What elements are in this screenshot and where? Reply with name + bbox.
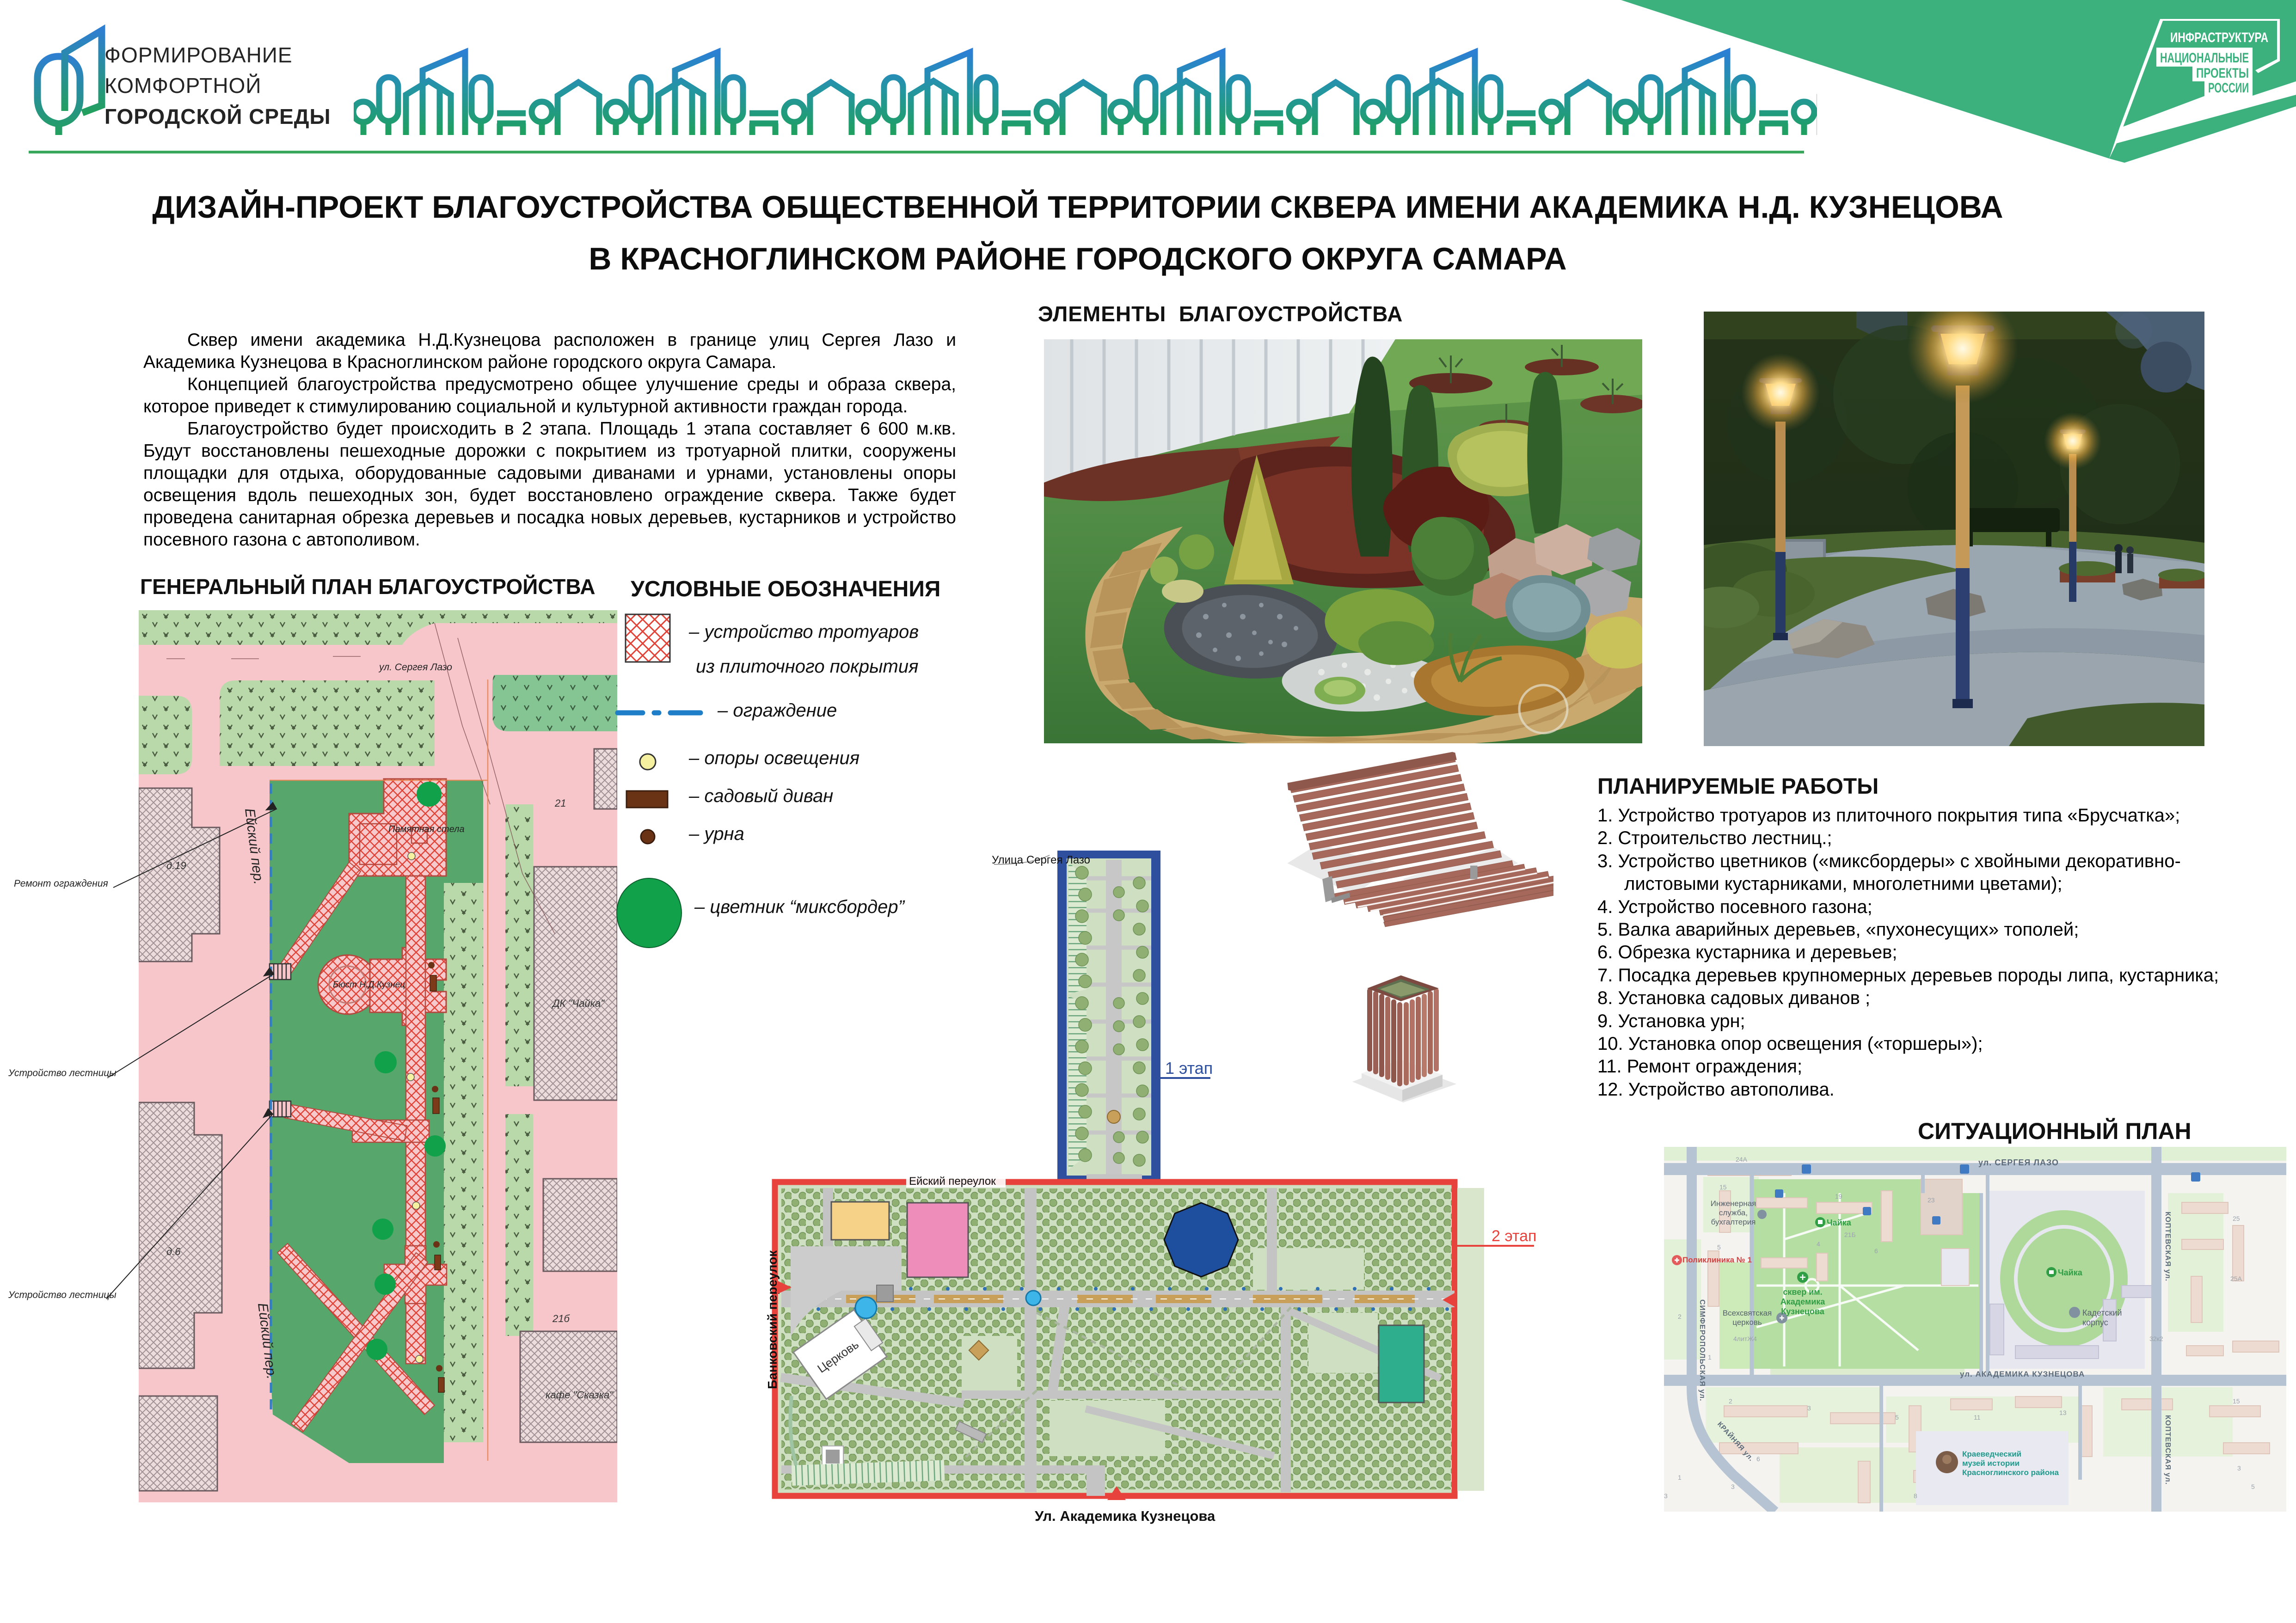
svg-text:НАЦИОНАЛЬНЫЕ: НАЦИОНАЛЬНЫЕ xyxy=(2160,50,2249,66)
svg-text:Поликлиника № 1: Поликлиника № 1 xyxy=(1682,1256,1752,1264)
svg-text:25А: 25А xyxy=(2230,1275,2242,1282)
svg-text:Памятная стела: Памятная стела xyxy=(388,824,465,834)
svg-text:32к2: 32к2 xyxy=(2149,1335,2163,1342)
svg-text:5: 5 xyxy=(1895,1414,1899,1421)
svg-text:2 этап: 2 этап xyxy=(1492,1227,1536,1245)
svg-text:ул. Сергея Лазо: ул. Сергея Лазо xyxy=(378,662,452,673)
svg-text:5: 5 xyxy=(1717,1243,1721,1251)
svg-text:сквер им.АкадемикаКузнецова: сквер им.АкадемикаКузнецова xyxy=(1780,1287,1826,1316)
svg-text:21: 21 xyxy=(554,797,566,809)
svg-text:4: 4 xyxy=(1817,1240,1820,1248)
svg-text:ул. АКАДЕМИКА КУЗНЕЦОВА: ул. АКАДЕМИКА КУЗНЕЦОВА xyxy=(1960,1370,2085,1378)
svg-text:1: 1 xyxy=(1678,1474,1682,1481)
svg-text:19: 19 xyxy=(1835,1193,1842,1200)
svg-text:ФОРМИРОВАНИЕ: ФОРМИРОВАНИЕ xyxy=(104,43,293,67)
svg-text:2: 2 xyxy=(1729,1397,1732,1405)
svg-text:15: 15 xyxy=(2233,1397,2240,1405)
svg-text:25: 25 xyxy=(2233,1215,2240,1222)
svg-text:15: 15 xyxy=(1719,1183,1727,1191)
svg-text:2: 2 xyxy=(1678,1313,1682,1320)
svg-text:13: 13 xyxy=(2059,1409,2067,1416)
svg-text:3: 3 xyxy=(1807,1404,1811,1412)
svg-text:КОМФОРТНОЙ: КОМФОРТНОЙ xyxy=(104,73,261,98)
svg-text:ПРОЕКТЫ: ПРОЕКТЫ xyxy=(2196,66,2249,81)
svg-text:23: 23 xyxy=(1928,1196,1935,1204)
svg-text:ул. СЕРГЕЯ ЛАЗО: ул. СЕРГЕЯ ЛАЗО xyxy=(1978,1158,2059,1167)
svg-text:21б: 21б xyxy=(552,1313,570,1324)
svg-text:24А: 24А xyxy=(1736,1156,1748,1163)
svg-text:КОПТЕВСКАЯ ул.: КОПТЕВСКАЯ ул. xyxy=(2164,1212,2172,1281)
svg-text:3: 3 xyxy=(2237,1464,2241,1472)
svg-text:ГОРОДСКОЙ СРЕДЫ: ГОРОДСКОЙ СРЕДЫ xyxy=(104,104,331,129)
svg-text:КОПТЕВСКАЯ ул.: КОПТЕВСКАЯ ул. xyxy=(2164,1415,2172,1485)
svg-text:РОССИИ: РОССИИ xyxy=(2208,80,2249,96)
svg-text:1 этап: 1 этап xyxy=(1165,1059,1213,1078)
svg-text:Чайка: Чайка xyxy=(2058,1268,2083,1277)
svg-text:3: 3 xyxy=(1664,1492,1668,1500)
svg-text:3: 3 xyxy=(1731,1483,1735,1490)
svg-text:6: 6 xyxy=(1756,1455,1760,1463)
svg-text:кафе "Сказка": кафе "Сказка" xyxy=(546,1389,614,1401)
svg-text:Чайка: Чайка xyxy=(1827,1218,1852,1227)
svg-text:21Б: 21Б xyxy=(1844,1231,1856,1238)
svg-text:Ейский переулок: Ейский переулок xyxy=(909,1175,996,1188)
svg-text:Банковский переулок: Банковский переулок xyxy=(765,1250,780,1389)
svg-text:5: 5 xyxy=(2251,1483,2255,1490)
svg-text:11: 11 xyxy=(1974,1414,1981,1421)
svg-text:Ул. Академика Кузнецова: Ул. Академика Кузнецова xyxy=(1035,1508,1216,1524)
svg-text:6: 6 xyxy=(1874,1247,1878,1255)
svg-text:ДК "Чайка": ДК "Чайка" xyxy=(551,998,605,1009)
svg-text:Улица Сергея Лазо: Улица Сергея Лазо xyxy=(992,854,1090,866)
svg-text:ИНФРАСТРУКТУРА: ИНФРАСТРУКТУРА xyxy=(2170,30,2268,45)
svg-text:4литЖ4: 4литЖ4 xyxy=(1733,1335,1757,1342)
svg-text:СИМФЕРОПОЛЬСКАЯ ул.: СИМФЕРОПОЛЬСКАЯ ул. xyxy=(1698,1299,1706,1402)
svg-text:1: 1 xyxy=(1708,1354,1712,1361)
svg-text:8: 8 xyxy=(1914,1492,1917,1500)
